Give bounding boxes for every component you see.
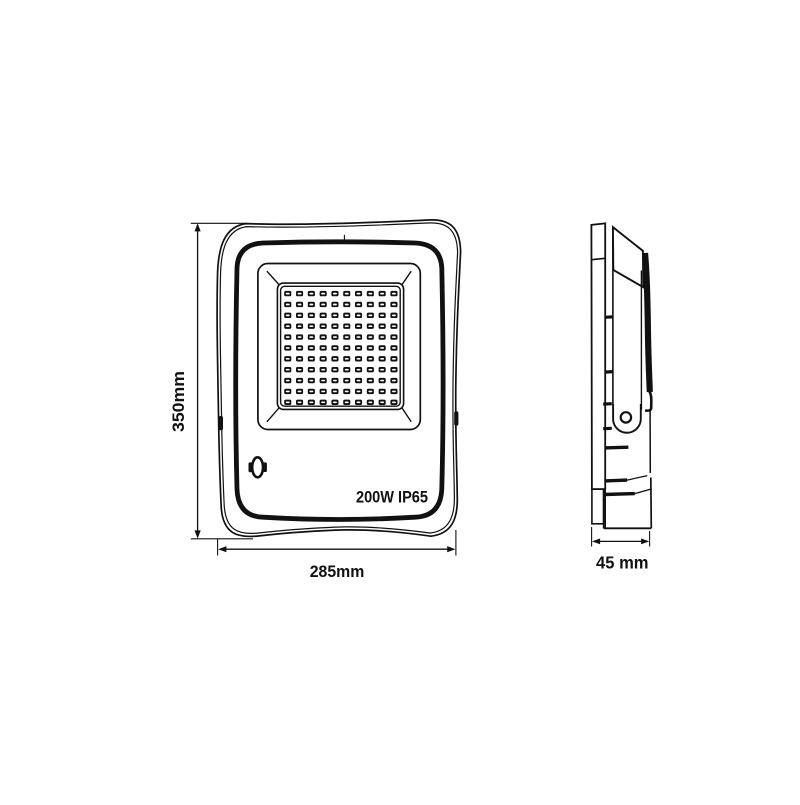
svg-text:200W IP65: 200W IP65	[356, 488, 428, 506]
svg-text:285mm: 285mm	[310, 562, 365, 581]
svg-text:45 mm: 45 mm	[596, 553, 649, 573]
svg-text:350mm: 350mm	[169, 371, 188, 432]
